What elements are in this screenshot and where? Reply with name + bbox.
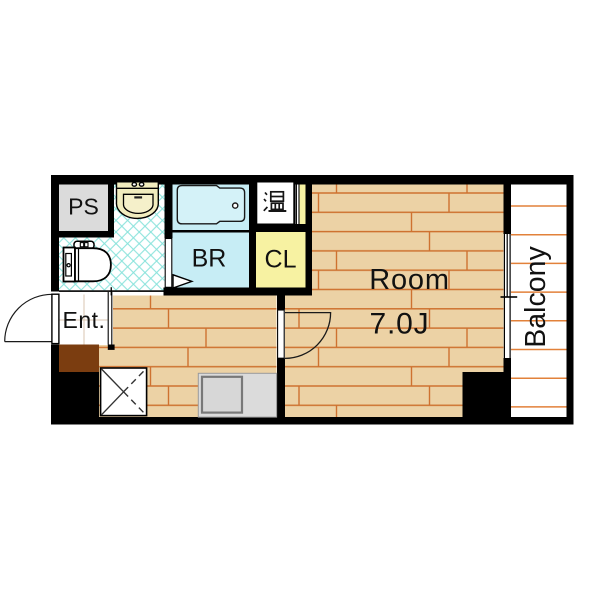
svg-text:7.0J: 7.0J	[370, 308, 430, 341]
svg-text:PS: PS	[68, 194, 99, 220]
svg-text:Room: Room	[369, 264, 450, 296]
svg-text:BR: BR	[192, 245, 227, 273]
svg-text:Balcony: Balcony	[520, 246, 552, 348]
svg-text:CL: CL	[265, 246, 297, 274]
svg-text:Ent.: Ent.	[63, 307, 106, 333]
